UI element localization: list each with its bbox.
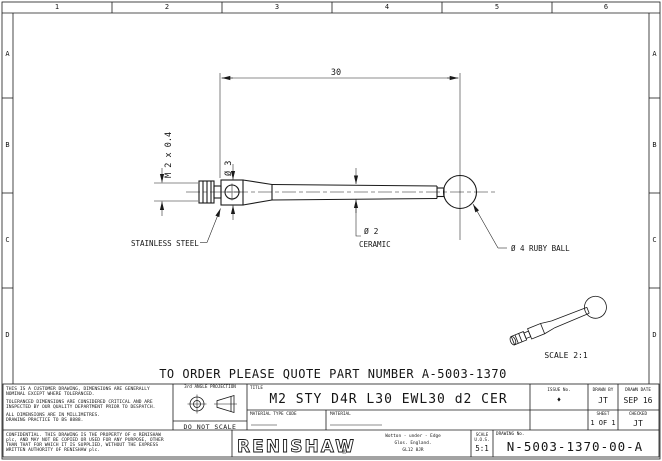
checked-value: JT — [618, 419, 658, 428]
zone-label-right-d: D — [649, 330, 660, 341]
zone-label-right-a: A — [649, 49, 660, 60]
sheet-value: 1 OF 1 — [588, 419, 618, 427]
drawing-sheet: 30 M 2 x 0.4 Ø 3 Ø 2 CERAMIC STAINLESS S… — [0, 0, 662, 461]
zone-label-top-3: 3 — [250, 2, 304, 13]
drawing-no-label: DRAWING No. — [496, 432, 524, 437]
stem-material-label: CERAMIC — [359, 240, 391, 249]
order-note: TO ORDER PLEASE QUOTE PART NUMBER A-5003… — [100, 367, 566, 381]
holder-material-label: STAINLESS STEEL — [131, 239, 199, 248]
material-label: MATERIAL — [330, 412, 351, 417]
address-line-1: Wotton - under - Edge — [358, 434, 468, 441]
drawn-by-label: DRAWN BY — [588, 388, 618, 393]
general-notes: THIS IS A CUSTOMER DRAWING, DIMENSIONS A… — [6, 387, 166, 423]
scale-uos-label: U.O.S. — [471, 437, 493, 442]
zone-label-right-b: B — [649, 140, 660, 151]
sheet-label: SHEET — [588, 412, 618, 417]
zone-label-top-2: 2 — [140, 2, 194, 13]
drawn-date-label: DRAWN DATE — [618, 388, 658, 393]
zone-label-left-d: D — [2, 330, 13, 341]
dimensions: 30 M 2 x 0.4 Ø 3 Ø 2 CERAMIC STAINLESS S… — [131, 68, 570, 253]
stem-dia-label: Ø 2 — [364, 226, 379, 236]
zone-label-top-4: 4 — [360, 2, 414, 13]
dim-stem-dia-text: Ø 3 — [223, 161, 234, 176]
company-address: Wotton - under - Edge Glos. England. GL1… — [358, 434, 468, 454]
checked-label: CHECKED — [618, 412, 658, 417]
zone-label-top-6: 6 — [579, 2, 633, 13]
projection-label: 3rd ANGLE PROJECTION — [174, 385, 246, 390]
projection-symbol — [188, 395, 238, 414]
zone-label-left-a: A — [2, 49, 13, 60]
address-line-2: Glos. England. — [358, 441, 468, 448]
dim-length-text: 30 — [331, 68, 341, 78]
ball-label: Ø 4 RUBY BALL — [511, 244, 570, 253]
stylus-iso-view: SCALE 2:1 — [506, 293, 609, 360]
issue-value: ♦ — [530, 396, 588, 404]
address-line-3: GL12 8JR — [358, 448, 468, 455]
material-type-code-label: MATERIAL TYPE CODE — [250, 412, 297, 417]
zone-label-left-c: C — [2, 235, 13, 246]
company-logo-text: RENISHAW — [237, 437, 356, 457]
drawn-date-value: SEP 16 — [618, 396, 658, 405]
registered-mark: ® — [341, 448, 348, 456]
zone-label-right-c: C — [649, 235, 660, 246]
zone-label-top-5: 5 — [470, 2, 524, 13]
company-logo: RENISHAW ® — [237, 437, 356, 457]
drawn-by-value: JT — [588, 396, 618, 405]
confidential-note: CONFIDENTIAL. THIS DRAWING IS THE PROPER… — [6, 433, 168, 453]
dim-thread-text: M 2 x 0.4 — [164, 132, 174, 178]
title-label: TITLE — [250, 386, 263, 391]
note-toleranced: TOLERANCED DIMENSIONS ARE CONSIDERED CRI… — [6, 400, 166, 410]
zone-label-top-1: 1 — [30, 2, 84, 13]
do-not-scale-label: DO NOT SCALE — [174, 423, 246, 431]
note-practice: DRAWING PRACTICE TO BS 8888. — [6, 418, 166, 423]
zone-label-left-b: B — [2, 140, 13, 151]
issue-label: ISSUE No. — [530, 388, 588, 393]
part-title: M2 STY D4R L30 EWL30 d2 CER — [247, 392, 530, 407]
note-customer-drawing: THIS IS A CUSTOMER DRAWING, DIMENSIONS A… — [6, 387, 166, 397]
drawing-no-value: N-5003-1370-00-A — [493, 439, 657, 454]
stylus-front-view — [186, 176, 498, 209]
iso-scale-note: SCALE 2:1 — [544, 351, 588, 360]
scale-value: 5:1 — [471, 444, 493, 453]
